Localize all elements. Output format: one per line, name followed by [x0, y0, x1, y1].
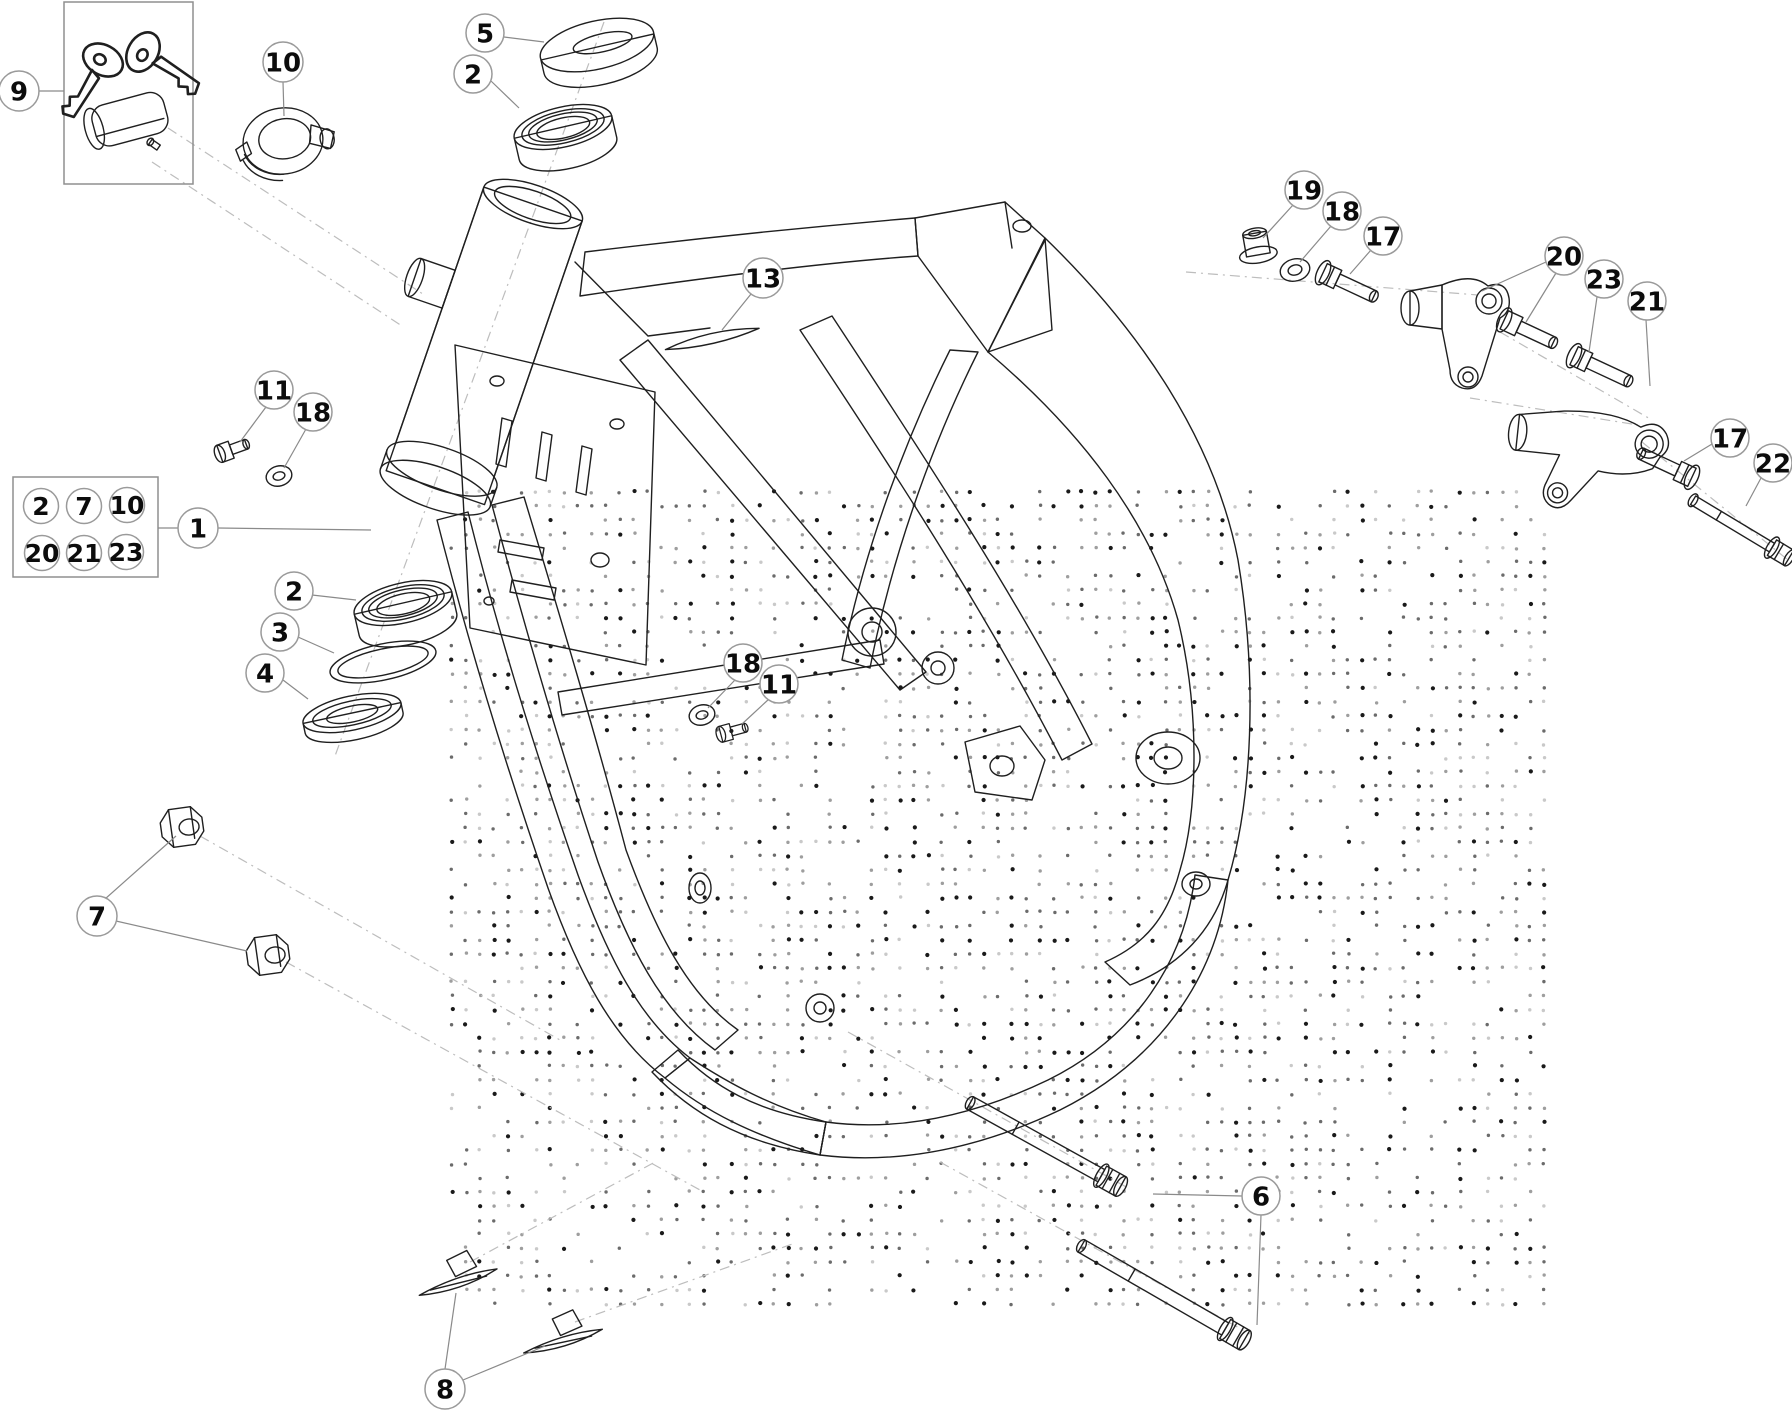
reference-item-23[interactable]: 23: [109, 535, 144, 570]
clamp-1-drawing: [411, 1244, 499, 1299]
callout-13[interactable]: 13: [743, 258, 783, 298]
callout-19[interactable]: 19: [1285, 171, 1323, 209]
reference-box-items: 2710202123: [24, 488, 145, 571]
leader-line: [240, 407, 266, 442]
steering-cap-drawing: [535, 9, 662, 97]
reference-item-2[interactable]: 2: [24, 489, 59, 524]
lower-bearing-drawing: [350, 572, 461, 655]
leader-line: [1350, 250, 1371, 274]
callout-8[interactable]: 8: [425, 1369, 465, 1409]
callout-number: 11: [256, 377, 292, 407]
callout-number: 2: [32, 492, 49, 521]
callout-4[interactable]: 4: [246, 654, 284, 692]
leader-line: [722, 294, 751, 330]
leader-line: [116, 921, 247, 951]
callout-number: 7: [88, 903, 106, 933]
callout-number: 20: [1546, 243, 1582, 273]
callout-number: 2: [464, 61, 482, 91]
parts-diagram-canvas: 2710202123 91052131918172023211722111812…: [0, 0, 1792, 1410]
callout-22[interactable]: 22: [1754, 444, 1792, 482]
dust-seal-drawing: [300, 686, 407, 750]
washer-mid-drawing: [687, 702, 717, 728]
steering-head-tube: [338, 155, 594, 527]
reference-item-21[interactable]: 21: [67, 536, 102, 571]
leader-line: [1526, 273, 1556, 322]
callout-number: 23: [1586, 266, 1622, 296]
callout-18-mid[interactable]: 18: [724, 644, 762, 682]
callout-6[interactable]: 6: [1242, 1177, 1280, 1215]
callout-3[interactable]: 3: [261, 613, 299, 651]
bolt-17-upper-drawing: [1312, 258, 1383, 309]
upper-bearing-drawing: [510, 96, 621, 179]
bracket-20-drawing: [1401, 279, 1509, 389]
callout-number: 18: [295, 399, 331, 429]
leader-line: [1646, 320, 1650, 386]
leader-line: [708, 680, 735, 708]
leader-line: [298, 637, 334, 653]
leader-line: [312, 595, 356, 600]
leader-line: [445, 1293, 456, 1369]
callout-number: 9: [10, 78, 28, 108]
leader-line: [1684, 444, 1712, 461]
callout-number: 5: [476, 20, 494, 50]
reference-item-10[interactable]: 10: [110, 488, 145, 523]
leader-line: [491, 81, 519, 108]
leader-line: [218, 528, 371, 530]
callout-11-left[interactable]: 11: [255, 371, 293, 409]
callouts-layer: 91052131918172023211722111812347861811: [0, 14, 1792, 1409]
callout-20[interactable]: 20: [1545, 237, 1583, 275]
ignition-keys-drawing: [53, 26, 210, 128]
callout-number: 4: [256, 660, 274, 690]
callout-number: 10: [110, 491, 145, 520]
callout-number: 17: [1365, 223, 1401, 253]
leader-line: [284, 429, 306, 468]
hex-nut-2-drawing: [245, 933, 292, 976]
callout-10[interactable]: 10: [263, 42, 303, 82]
callout-number: 18: [1324, 198, 1360, 228]
frame-drawing: [338, 155, 1250, 1158]
callout-18-right[interactable]: 18: [1323, 192, 1361, 230]
leader-line: [1153, 1194, 1242, 1196]
callout-18-left[interactable]: 18: [294, 393, 332, 431]
leader-line: [1589, 297, 1597, 352]
long-bolt-1-drawing: [960, 1090, 1131, 1200]
reference-item-20[interactable]: 20: [25, 536, 60, 571]
callout-number: 17: [1712, 425, 1748, 455]
callout-1[interactable]: 1: [178, 508, 218, 548]
callout-21[interactable]: 21: [1628, 282, 1666, 320]
hex-nut-1-drawing: [159, 805, 206, 848]
small-bolt-left-drawing: [212, 435, 252, 464]
callout-number: 3: [271, 619, 289, 649]
steering-lock-drawing: [231, 101, 340, 186]
leader-line: [283, 82, 284, 116]
callout-23[interactable]: 23: [1585, 260, 1623, 298]
callout-17-upper[interactable]: 17: [1364, 217, 1402, 255]
callout-2-top[interactable]: 2: [454, 55, 492, 93]
key-kit-box: [64, 2, 193, 184]
callout-number: 6: [1252, 1183, 1270, 1213]
callout-number: 21: [1629, 288, 1665, 318]
leader-line: [1746, 478, 1761, 506]
reference-item-7[interactable]: 7: [67, 489, 102, 524]
clamp-2-drawing: [516, 1304, 604, 1356]
callout-number: 11: [761, 671, 797, 701]
lock-cylinder-drawing: [80, 89, 171, 151]
leader-line: [463, 1346, 545, 1380]
leader-line: [1263, 205, 1293, 238]
leader-line: [283, 680, 308, 699]
callout-number: 20: [25, 539, 60, 568]
callout-number: 8: [436, 1376, 454, 1406]
callout-number: 21: [67, 539, 102, 568]
washer-left-drawing: [264, 463, 294, 489]
callout-number: 22: [1755, 450, 1791, 480]
callout-11-mid[interactable]: 11: [760, 665, 798, 703]
leader-line: [1257, 1215, 1261, 1325]
bolt-23-drawing: [1563, 341, 1637, 394]
callout-number: 18: [725, 650, 761, 680]
leader-line: [1482, 262, 1546, 291]
flange-nut-drawing: [1235, 225, 1279, 266]
gusset-plate-drawing: [664, 322, 760, 355]
callout-2-left[interactable]: 2: [275, 572, 313, 610]
callout-number: 13: [745, 265, 781, 295]
callout-9[interactable]: 9: [0, 71, 39, 111]
callout-number: 2: [285, 578, 303, 608]
bracket-21-drawing: [1501, 404, 1671, 519]
callout-7[interactable]: 7: [77, 896, 117, 936]
o-ring-drawing: [326, 633, 439, 691]
leader-line: [1300, 226, 1331, 262]
callout-number: 19: [1286, 177, 1322, 207]
callout-number: 1: [189, 515, 207, 545]
bolt-20-drawing: [1493, 306, 1562, 357]
bolt-22-drawing: [1684, 488, 1792, 570]
callout-number: 23: [109, 538, 144, 567]
callout-number: 7: [75, 492, 92, 521]
leader-line: [504, 37, 544, 42]
leader-line: [105, 836, 176, 899]
callout-number: 10: [265, 49, 301, 79]
lock-screw-drawing: [146, 137, 161, 151]
callout-17-lower[interactable]: 17: [1711, 419, 1749, 457]
callout-5[interactable]: 5: [466, 14, 504, 52]
